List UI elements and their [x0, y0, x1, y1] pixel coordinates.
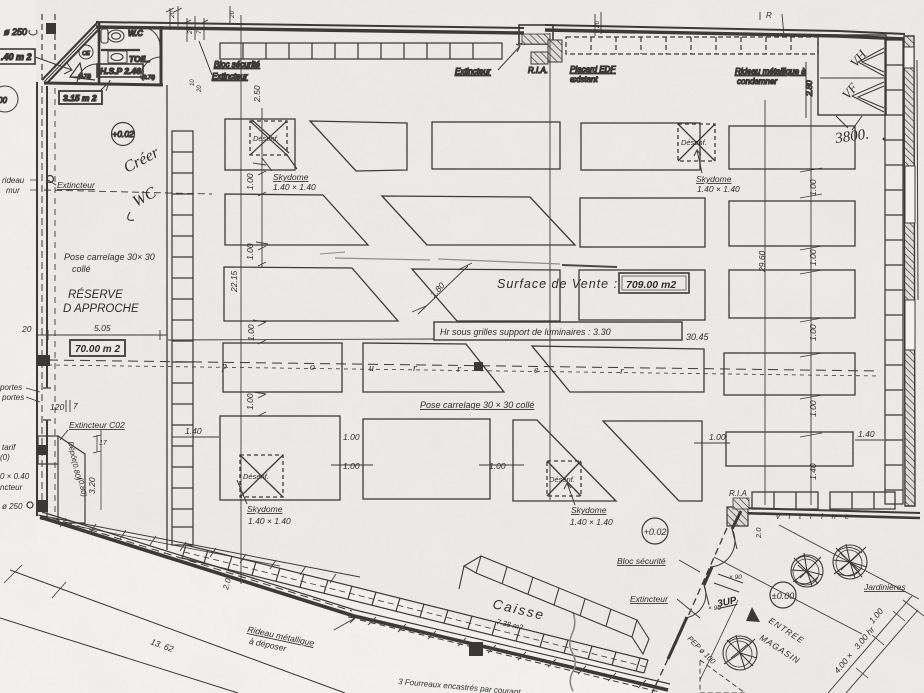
- svg-text:120: 120: [50, 402, 64, 412]
- svg-text:u: u: [369, 363, 374, 374]
- svg-text:1.40 × 1.40: 1.40 × 1.40: [570, 517, 613, 527]
- svg-text:× 90: × 90: [708, 605, 721, 612]
- svg-text:× 90: × 90: [729, 574, 742, 581]
- svg-text:1.00: 1.00: [808, 400, 818, 417]
- svg-text:Désenf.: Désenf.: [549, 475, 575, 484]
- svg-text:R: R: [766, 11, 772, 20]
- svg-text:Extincteur: Extincteur: [455, 67, 491, 76]
- svg-text:(0.73): (0.73): [142, 75, 155, 81]
- svg-text:W.C: W.C: [128, 29, 143, 38]
- svg-text:portes: portes: [1, 393, 24, 402]
- svg-text:Extincteur: Extincteur: [630, 594, 669, 604]
- svg-text:2.0: 2.0: [754, 527, 763, 539]
- svg-text:p: p: [221, 361, 227, 372]
- svg-text:1.40: 1.40: [858, 429, 875, 439]
- svg-text:20: 20: [197, 85, 203, 93]
- svg-text:1.40: 1.40: [808, 463, 818, 480]
- svg-text:30.45: 30.45: [686, 332, 710, 342]
- svg-text:20: 20: [594, 20, 601, 29]
- svg-text:Désenf.: Désenf.: [253, 134, 279, 143]
- svg-text:1.00: 1.00: [709, 432, 726, 442]
- svg-text:CE: CE: [82, 51, 90, 57]
- svg-text:1.00: 1.00: [343, 432, 360, 442]
- svg-text:70.00 m 2: 70.00 m 2: [75, 344, 120, 355]
- svg-text:Pose carrelage 30 × 30 col: Pose carrelage 30 × 30 collé: [420, 400, 534, 410]
- svg-text:20: 20: [169, 10, 176, 19]
- svg-text:Bloc sécurité: Bloc sécurité: [617, 556, 666, 566]
- svg-text:D APPROCHE: D APPROCHE: [63, 303, 139, 315]
- svg-text:(0): (0): [0, 453, 10, 462]
- svg-text:R.I.A.: R.I.A.: [528, 66, 548, 75]
- svg-text:1.00: 1.00: [245, 393, 255, 410]
- svg-text:7: 7: [196, 30, 203, 34]
- svg-text:Surface de Vente :: Surface de Vente :: [497, 277, 618, 291]
- svg-text:Jardinières: Jardinières: [863, 582, 906, 592]
- svg-text:1.00: 1.00: [808, 324, 818, 341]
- svg-text:3.20: 3.20: [87, 477, 97, 494]
- svg-text:2.50: 2.50: [252, 85, 262, 103]
- svg-text:v i t r i n e: v i t r i n e: [776, 512, 852, 521]
- svg-text:+0.02: +0.02: [112, 129, 134, 139]
- svg-text:17: 17: [99, 440, 108, 447]
- svg-text:1.00: 1.00: [808, 179, 818, 196]
- svg-text:Skydome: Skydome: [571, 505, 607, 515]
- svg-text:1.00: 1.00: [808, 249, 818, 266]
- svg-text:r: r: [413, 363, 417, 374]
- svg-text:22.15: 22.15: [229, 270, 239, 293]
- svg-text:Bloc sécurité: Bloc sécurité: [214, 60, 260, 69]
- svg-text:1.00: 1.00: [489, 461, 506, 471]
- svg-text:.40 m 2: .40 m 2: [1, 52, 32, 62]
- svg-text:ø 250: ø 250: [4, 27, 27, 37]
- svg-text:1.00: 1.00: [245, 173, 255, 190]
- svg-text:Désenf.: Désenf.: [243, 472, 269, 481]
- svg-text:29.60: 29.60: [757, 250, 767, 273]
- svg-text:ncteur: ncteur: [0, 483, 23, 492]
- svg-text:r: r: [620, 366, 624, 377]
- svg-text:1.00: 1.00: [246, 324, 256, 341]
- svg-text:+0.02: +0.02: [644, 527, 667, 537]
- svg-text:Rideau métallique à: Rideau métallique à: [735, 67, 806, 76]
- svg-text:(0.73): (0.73): [78, 74, 91, 80]
- svg-text:rideau: rideau: [2, 176, 25, 185]
- svg-text:RÉSERVE: RÉSERVE: [68, 288, 123, 301]
- svg-text:5.05: 5.05: [94, 323, 111, 333]
- svg-text:7: 7: [73, 401, 78, 411]
- svg-text:1.00: 1.00: [245, 243, 255, 260]
- svg-text:ø 250: ø 250: [2, 502, 23, 511]
- svg-text:1.40: 1.40: [185, 426, 202, 436]
- svg-text:20: 20: [229, 10, 236, 19]
- svg-text:1.40 × 1.40: 1.40 × 1.40: [248, 516, 291, 526]
- svg-text:709.00 m2: 709.00 m2: [626, 279, 676, 291]
- svg-text:Pose carrelage 30× 30: Pose carrelage 30× 30: [64, 252, 155, 262]
- svg-text:Extincteur: Extincteur: [212, 72, 248, 81]
- svg-text:R.I.A: R.I.A: [729, 489, 747, 498]
- svg-text:00: 00: [0, 96, 7, 105]
- svg-text:20: 20: [21, 324, 32, 334]
- svg-text:collé: collé: [72, 264, 91, 274]
- svg-text:r: r: [457, 364, 461, 375]
- svg-text:Désenf.: Désenf.: [681, 138, 707, 147]
- svg-text:portes: portes: [0, 383, 22, 392]
- svg-text:Skydome: Skydome: [696, 174, 732, 184]
- svg-text:10: 10: [190, 79, 196, 86]
- svg-text:3.15 m 2: 3.15 m 2: [63, 93, 97, 103]
- svg-text:1.40 × 1.40: 1.40 × 1.40: [273, 182, 316, 192]
- svg-text:Hr sous grilles support de: Hr sous grilles support de luminaires : …: [440, 327, 611, 337]
- svg-text:Extincteur C02: Extincteur C02: [69, 420, 125, 430]
- svg-text:mur: mur: [6, 186, 20, 195]
- svg-text:existant: existant: [570, 75, 598, 84]
- svg-text:Extincteur: Extincteur: [57, 180, 96, 190]
- svg-text:Skydome: Skydome: [247, 504, 283, 514]
- svg-text:1.40 × 1.40: 1.40 × 1.40: [697, 184, 740, 194]
- svg-text:Placard EDF: Placard EDF: [570, 65, 616, 74]
- svg-text:H.S.P 2.46: H.S.P 2.46: [100, 66, 141, 76]
- svg-text:20: 20: [187, 26, 194, 35]
- svg-text:o: o: [310, 362, 315, 373]
- svg-text:condamner: condamner: [737, 77, 777, 86]
- svg-text:e: e: [534, 365, 539, 376]
- svg-text:TOIL.: TOIL.: [129, 54, 151, 64]
- svg-text:1.00: 1.00: [343, 461, 360, 471]
- svg-text:tarif: tarif: [2, 443, 16, 452]
- svg-text:0 × 0.40: 0 × 0.40: [0, 472, 30, 481]
- svg-text:Skydome: Skydome: [273, 172, 309, 182]
